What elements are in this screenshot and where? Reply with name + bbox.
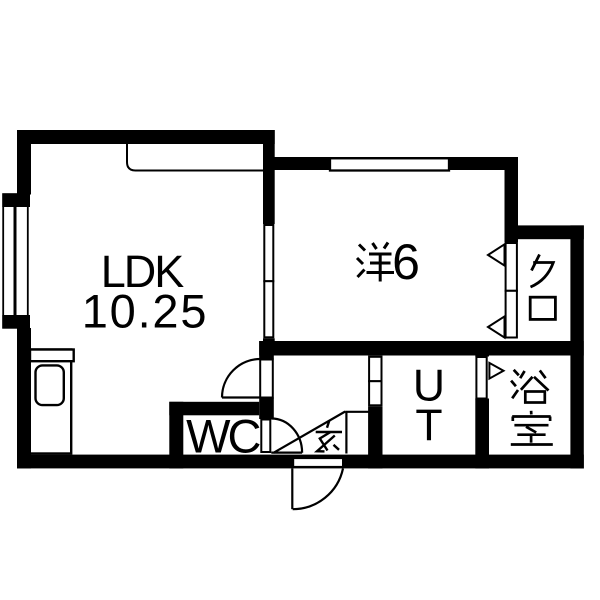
svg-text:T: T	[415, 401, 442, 450]
svg-text:WC: WC	[186, 410, 260, 463]
svg-text:10.25: 10.25	[82, 285, 209, 338]
svg-text:6: 6	[392, 234, 420, 290]
